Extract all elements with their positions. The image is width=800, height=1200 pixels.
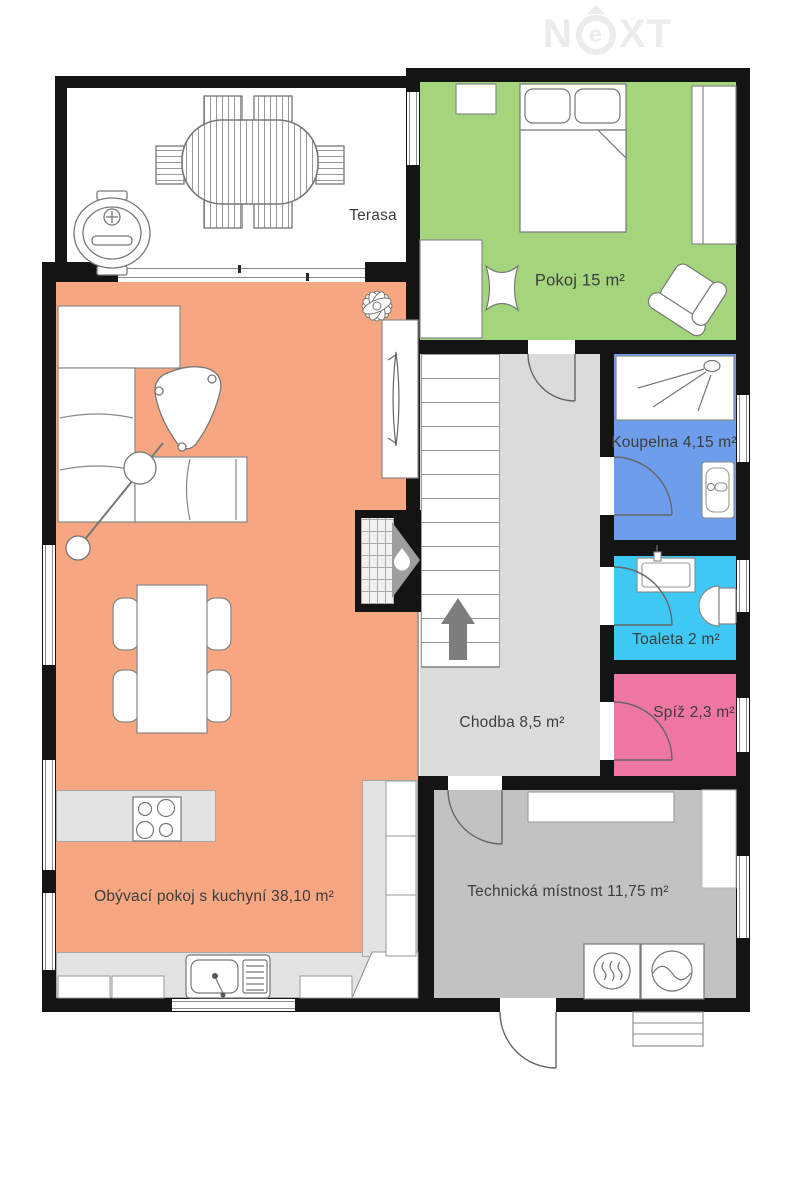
window [737,560,749,612]
door-opening [600,457,614,515]
door-opening [600,702,614,760]
wall [418,790,434,1012]
label-obyvaci: Obývací pokoj s kuchyní 38,10 m² [94,888,334,906]
window [43,893,55,970]
floorplan: Terasa Pokoj 15 m² Koupelna 4,15 m² Toal… [0,0,800,1200]
sliding-terrace-door [118,266,365,280]
window [43,760,55,870]
window [737,395,749,462]
logo-letters-xt: XT [619,12,672,57]
slider-handle [238,265,241,273]
door-opening [448,776,502,790]
label-koupelna: Koupelna 4,15 m² [611,434,737,452]
logo-caret-icon [587,5,605,14]
wall [406,68,750,82]
label-terasa: Terasa [349,207,397,225]
room-spiz [614,674,736,776]
door-opening [600,567,614,625]
kitchen-counter-bottom [56,952,418,998]
window [737,698,749,752]
wall [55,76,67,268]
label-spiz: Spíž 2,3 m² [653,704,734,722]
exterior-steps [633,1012,703,1046]
label-technicka: Technická místnost 11,75 m² [467,883,669,901]
window [737,856,749,938]
floor-boundary-line [417,612,419,776]
window [407,92,419,165]
wall [600,540,750,556]
label-chodba: Chodba 8,5 m² [459,714,564,732]
next-logo: N e XT [543,12,672,57]
door-opening [528,340,575,354]
wall [406,282,420,512]
wall [55,76,412,88]
stairs-up-arrow-shaft [449,624,467,660]
wall [42,998,750,1012]
label-toaleta: Toaleta 2 m² [632,631,720,649]
window [172,999,295,1011]
room-pokoj [420,82,736,340]
wall [600,660,750,674]
window [43,545,55,665]
kitchen-counter-left [56,790,216,842]
wall [406,340,750,354]
door-opening [500,998,556,1012]
room-terasa [55,76,412,282]
logo-letter-n: N [543,12,573,57]
logo-letter-e: e [576,15,616,55]
slider-handle [306,273,309,281]
kitchen-tall-cabinet [362,780,418,957]
fireplace-grid [361,518,394,604]
stairs-up-arrow-icon [441,598,475,624]
label-pokoj: Pokoj 15 m² [535,272,625,291]
